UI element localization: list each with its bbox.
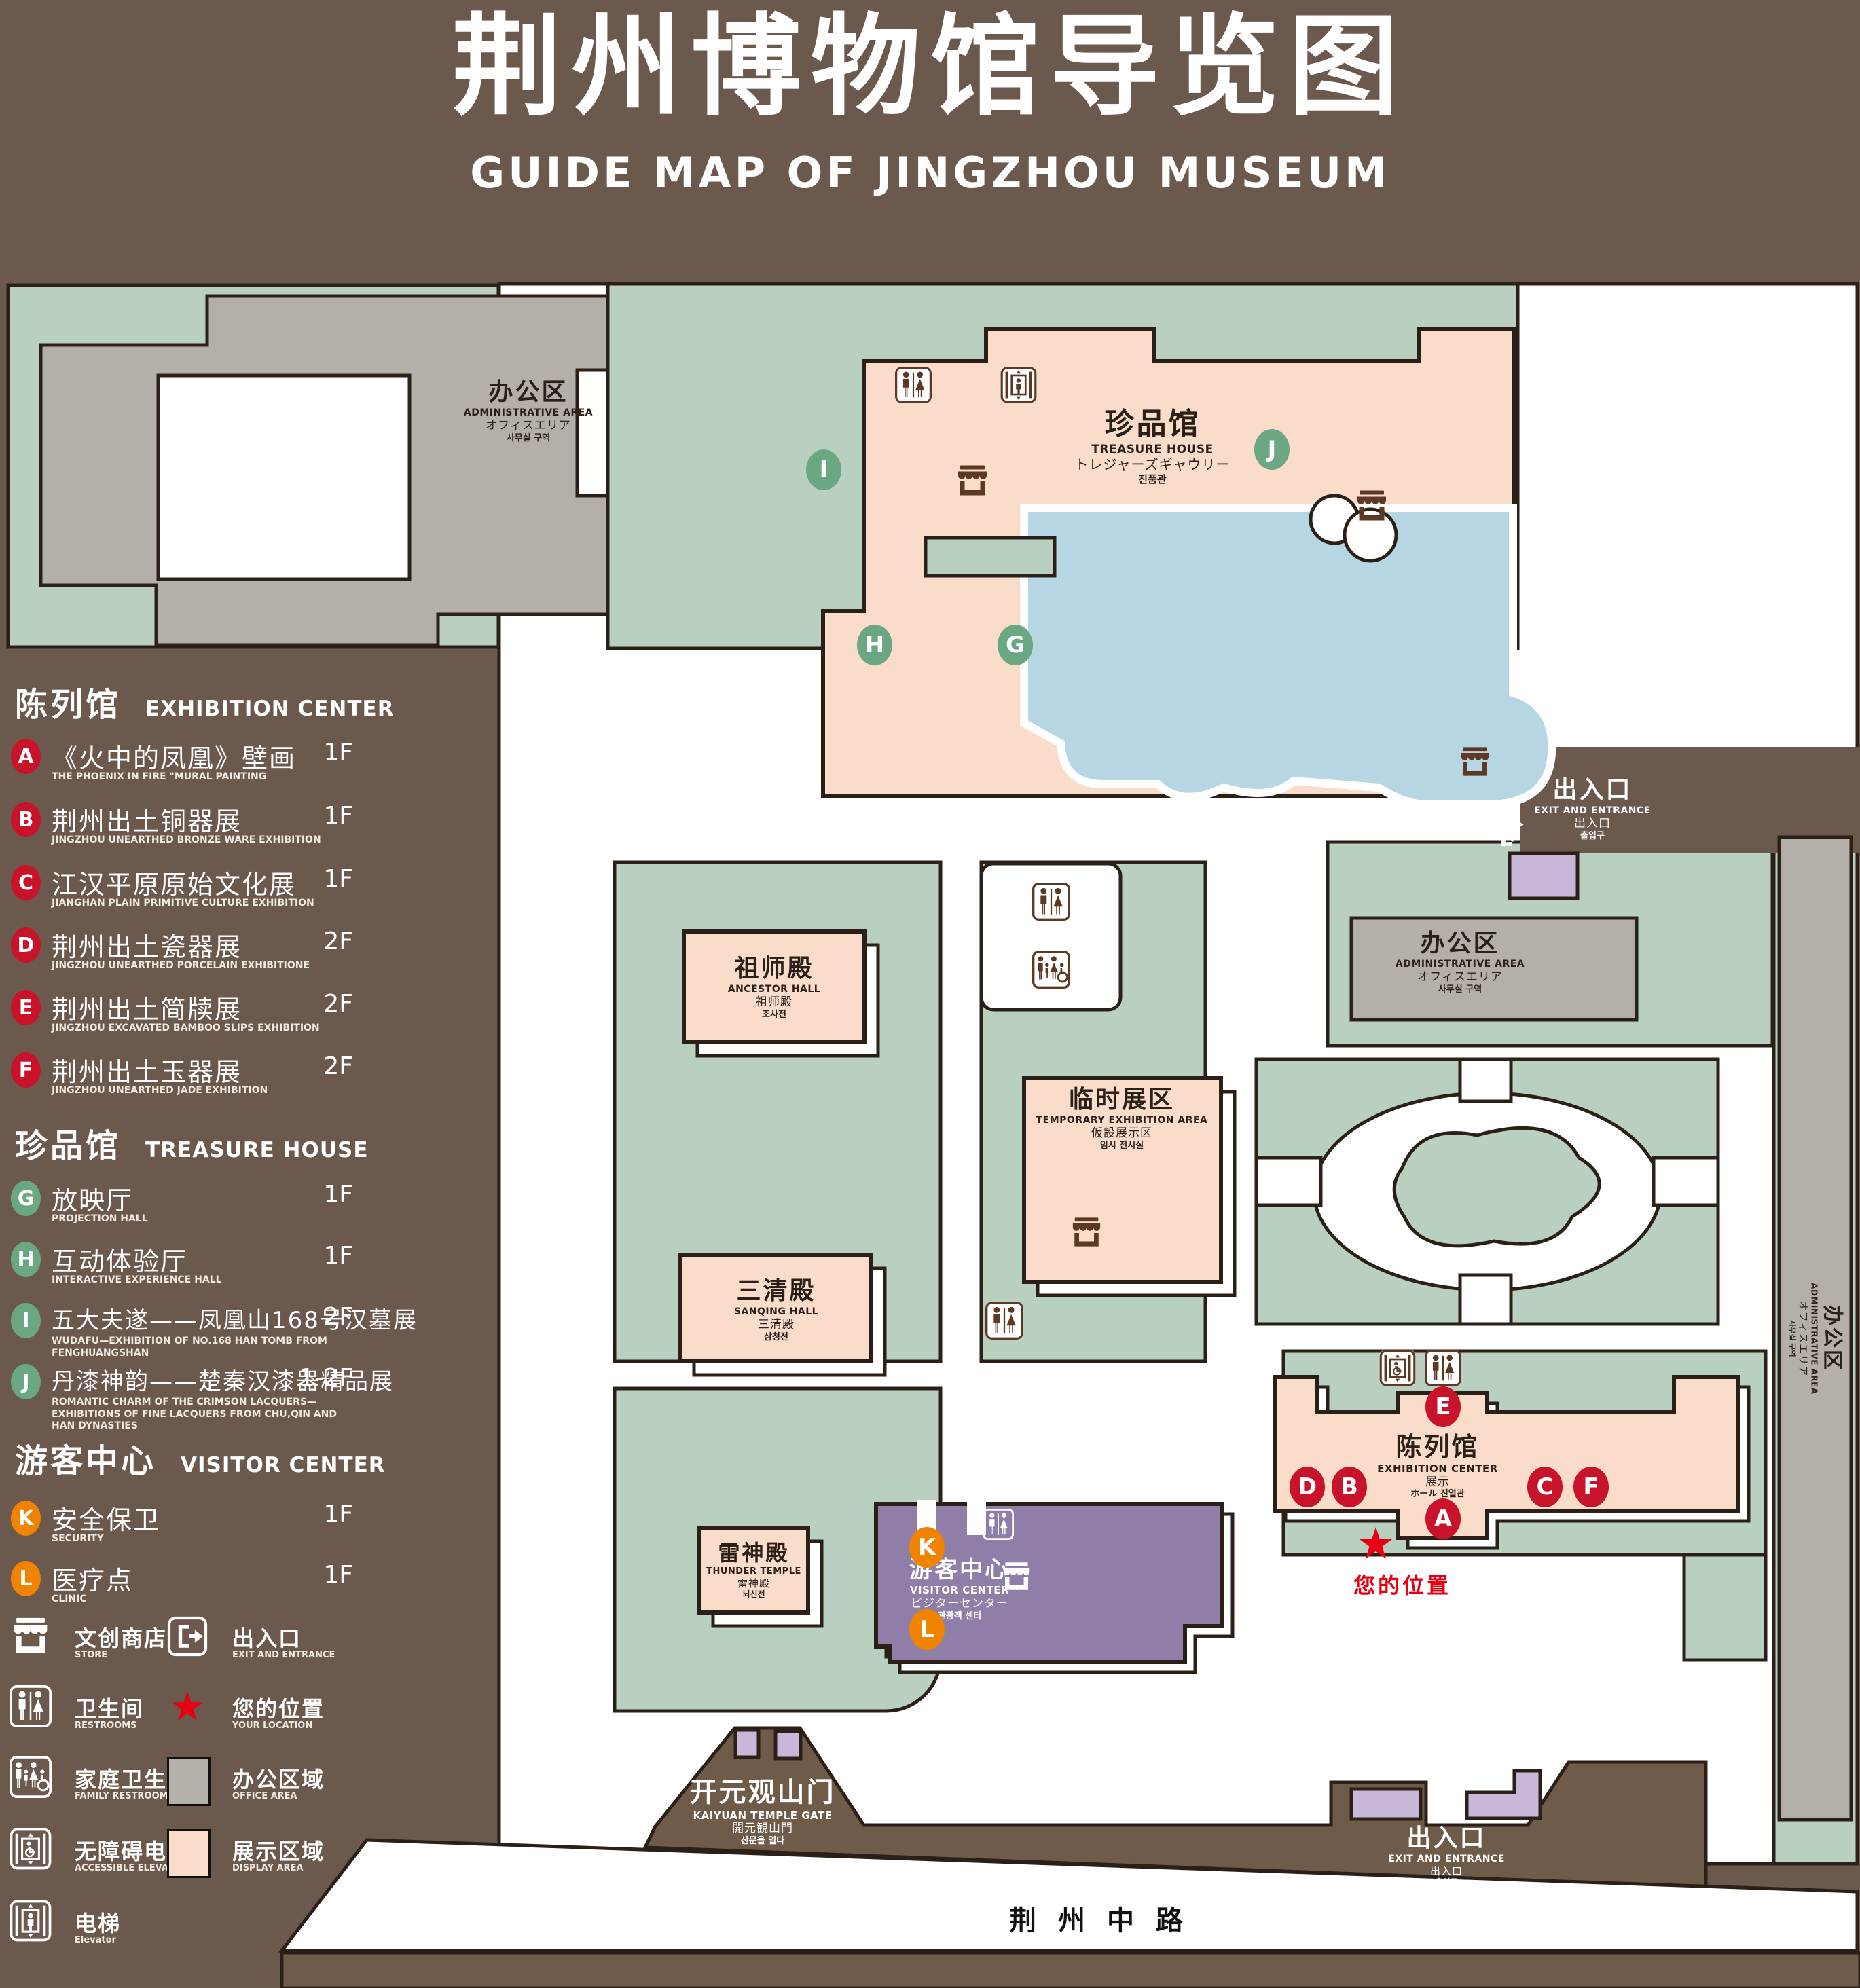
- office-area-swatch: [167, 1757, 211, 1806]
- east-entrance-block: [1510, 853, 1578, 898]
- label-en: ADMINISTRATIVE AREA: [393, 407, 664, 419]
- label-ja: オフィスエリア: [1797, 1202, 1809, 1474]
- exit-icon: [167, 1616, 208, 1657]
- green-patch: [1684, 1555, 1766, 1660]
- item-floor: 1F: [323, 1561, 353, 1589]
- facility-zh: 办公区域: [232, 1763, 325, 1794]
- map-marker-F: F: [1573, 1467, 1609, 1507]
- facility-zh: 展示区域: [232, 1835, 325, 1866]
- family-restrooms-icon: [10, 1756, 52, 1798]
- elevator-icon: [10, 1900, 52, 1942]
- label-zh: 出入口: [1525, 775, 1660, 805]
- label-ko: 진품관: [1017, 473, 1288, 485]
- ancestor-hall-label: 祖师殿 ANCESTOR HALL 祖师殿 조사전: [672, 954, 876, 1020]
- item-en: WUDAFU—EXHIBITION OF NO.168 HAN TOMB FRO…: [52, 1336, 350, 1359]
- label-ja: 出入口: [1345, 1865, 1548, 1877]
- section-title-zh: 珍品馆: [15, 1127, 121, 1165]
- facility-en: OFFICE AREA: [232, 1791, 297, 1801]
- label-zh: 祖师殿: [672, 954, 876, 984]
- garden-path: [1460, 1275, 1511, 1324]
- admin-east-label: 办公区 ADMINISTRATIVE AREA オフィスエリア 사무실 구역: [1324, 929, 1596, 995]
- item-en: JINGZHOU UNEARTHED JADE EXHIBITION: [52, 1085, 350, 1097]
- item-zh: 互动体验厅: [52, 1240, 187, 1278]
- item-en: SECURITY: [52, 1533, 350, 1545]
- courtyard: [158, 375, 409, 579]
- store-icon: [11, 1616, 50, 1655]
- thunder-temple-label: 雷神殿 THUNDER TEMPLE 雷神殿 뇌신전: [652, 1540, 856, 1600]
- label-zh: 办公区: [1324, 929, 1596, 959]
- label-en: EXIT AND ENTRANCE: [1525, 805, 1660, 817]
- item-zh: 荆州出土玉器展: [52, 1051, 242, 1088]
- map-marker-G: G: [998, 625, 1033, 665]
- facility-zh: 电梯: [75, 1907, 121, 1938]
- label-ko: 사무실 구역: [1788, 1202, 1797, 1474]
- your-location-star-icon: [1358, 1526, 1393, 1562]
- label-ko: 사무실 구역: [393, 433, 664, 444]
- map-marker-L: L: [909, 1609, 945, 1650]
- facility-en: EXIT AND ENTRANCE: [232, 1650, 335, 1660]
- garden-path: [1460, 1059, 1511, 1101]
- legend-section-exhibition-center: 陈列馆EXHIBITION CENTER: [15, 678, 395, 725]
- item-floor: 1F: [323, 1242, 353, 1270]
- restrooms-icon: [10, 1685, 52, 1727]
- road-name: 荆州中路: [903, 1898, 1311, 1938]
- marker-badge: E: [11, 990, 41, 1025]
- section-title-en: TREASURE HOUSE: [145, 1138, 369, 1162]
- label-ko: 삼청전: [674, 1332, 878, 1343]
- section-title-zh: 游客中心: [15, 1442, 156, 1480]
- section-title-en: VISITOR CENTER: [181, 1453, 386, 1477]
- label-ko: 관광객 센터: [858, 1611, 1061, 1622]
- gate-pillar: [776, 1731, 801, 1759]
- your-location-icon: [171, 1691, 204, 1723]
- guide-map-poster: 荆州博物馆导览图 GUIDE MAP OF JINGZHOU MUSEUM: [0, 0, 1860, 1988]
- accessible-elevator-icon: [1379, 1350, 1416, 1386]
- display-area-swatch: [167, 1829, 211, 1878]
- marker-badge: I: [11, 1303, 41, 1338]
- item-floor: 1F: [323, 802, 353, 830]
- map-marker-J: J: [1254, 429, 1290, 470]
- store-icon: [1070, 1216, 1103, 1249]
- south-exit-label: 出入口 EXIT AND ENTRANCE 出入口 출입구: [1345, 1824, 1548, 1888]
- label-zh: 临时展区: [1020, 1085, 1224, 1115]
- facility-en: FAMILY RESTROOMS: [75, 1791, 175, 1801]
- item-en: JINGZHOU UNEARTHED BRONZE WARE EXHIBITIO…: [52, 834, 350, 847]
- marker-badge: L: [11, 1561, 41, 1596]
- label-ko: 출입구: [1345, 1877, 1548, 1888]
- item-en: PROJECTION HALL: [52, 1213, 350, 1226]
- label-ja: オフィスエリア: [393, 419, 664, 433]
- section-title-zh: 陈列馆: [15, 686, 121, 724]
- store-icon: [1001, 1561, 1032, 1592]
- item-floor: 2F: [323, 1303, 353, 1331]
- label-en: TEMPORARY EXHIBITION AREA: [1020, 1115, 1224, 1126]
- label-ja: ビジターセンター: [858, 1597, 1061, 1611]
- treasure-house-label: 珍品馆 TREASURE HOUSE トレジャーズギャウリー 진품관: [1017, 406, 1288, 485]
- sanqing-hall-label: 三清殿 SANQING HALL 三清殿 삼청전: [674, 1276, 878, 1343]
- label-ko: 임시 전시실: [1020, 1141, 1224, 1152]
- legend-section-treasure-house: 珍品馆TREASURE HOUSE: [15, 1119, 369, 1166]
- item-zh: 荆州出土简牍展: [52, 989, 242, 1026]
- item-zh: 《火中的凤凰》壁画: [52, 737, 296, 775]
- admin-tower-label: 办公区 ADMINISTRATIVE AREA オフィスエリア 사무실 구역: [1788, 1202, 1844, 1474]
- label-zh: 雷神殿: [652, 1540, 856, 1566]
- item-en: INTERACTIVE EXPERIENCE HALL: [52, 1274, 350, 1287]
- item-floor: 1F: [323, 739, 353, 767]
- kaiyuan-gate-label: 开元观山门 KAIYUAN TEMPLE GATE 開元観山門 산문을 열다: [661, 1776, 864, 1847]
- label-ko: 산문을 열다: [661, 1836, 864, 1847]
- marker-badge: J: [11, 1364, 41, 1399]
- east-exit-label: 出入口 EXIT AND ENTRANCE 出入口 출입구: [1525, 775, 1660, 842]
- label-ko: 사무실 구역: [1324, 984, 1596, 995]
- label-ja: 祖师殿: [672, 995, 876, 1010]
- your-location-text: 您的位置: [1331, 1568, 1474, 1600]
- admin-northwest-label: 办公区 ADMINISTRATIVE AREA オフィスエリア 사무실 구역: [393, 378, 664, 444]
- item-zh: 安全保卫: [52, 1499, 160, 1536]
- label-en: ADMINISTRATIVE AREA: [1809, 1202, 1819, 1474]
- facility-zh: 您的位置: [232, 1692, 325, 1723]
- label-ja: 雷神殿: [652, 1577, 856, 1589]
- item-en: JINGZHOU EXCAVATED BAMBOO SLIPS EXHIBITI…: [52, 1023, 350, 1035]
- facility-en: Elevator: [75, 1935, 116, 1945]
- item-en: JIANGHAN PLAIN PRIMITIVE CULTURE EXHIBIT…: [52, 898, 350, 910]
- label-zh: 陈列馆: [1336, 1431, 1539, 1462]
- label-ja: オフィスエリア: [1324, 970, 1596, 984]
- item-zh: 医疗点: [52, 1560, 133, 1597]
- legend-section-visitor-center: 游客中心VISITOR CENTER: [15, 1434, 386, 1481]
- elevator-icon: [1000, 367, 1037, 403]
- facility-en: RESTROOMS: [75, 1720, 137, 1731]
- item-zh: 荆州出土瓷器展: [52, 926, 242, 963]
- item-zh: 荆州出土铜器展: [52, 800, 242, 838]
- road-south-band: [282, 1953, 1860, 1988]
- label-zh: 出入口: [1345, 1824, 1548, 1854]
- map-marker-B: B: [1332, 1467, 1367, 1507]
- map-marker-K: K: [909, 1527, 945, 1568]
- item-zh: 五大夫遂——凤凰山168号汉墓展: [52, 1302, 418, 1335]
- label-ja: 三清殿: [674, 1318, 878, 1332]
- marker-badge: C: [11, 865, 41, 900]
- store-icon: [1459, 745, 1491, 778]
- item-floor: 2F: [323, 990, 353, 1018]
- label-zh: 开元观山门: [661, 1776, 864, 1809]
- marker-badge: B: [11, 802, 41, 837]
- restrooms-icon: [1032, 883, 1070, 921]
- label-ja: 出入口: [1525, 817, 1660, 831]
- label-en: EXIT AND ENTRANCE: [1345, 1854, 1548, 1865]
- label-en: ADMINISTRATIVE AREA: [1324, 959, 1596, 970]
- family-restrooms-icon: [1032, 951, 1070, 989]
- store-icon: [1355, 489, 1389, 523]
- marker-badge: D: [11, 927, 41, 963]
- item-floor: 1F: [323, 1181, 353, 1209]
- map-marker-I: I: [806, 449, 841, 490]
- label-ja: 仮設展示区: [1020, 1126, 1224, 1141]
- label-en: TREASURE HOUSE: [1017, 443, 1288, 457]
- label-ja: トレジャーズギャウリー: [1017, 456, 1288, 473]
- restrooms-icon: [895, 367, 932, 403]
- exit-entrance-icon: [1491, 812, 1531, 851]
- item-floor: 2F: [323, 927, 353, 955]
- store-icon: [955, 464, 989, 498]
- gate-pillar: [735, 1730, 759, 1757]
- map-marker-A: A: [1425, 1498, 1461, 1539]
- facility-zh: 出入口: [232, 1621, 302, 1653]
- item-floor: 1F: [323, 1501, 353, 1528]
- item-zh: 放映厅: [52, 1179, 133, 1217]
- item-floor: 1-2F: [299, 1364, 353, 1392]
- label-en: THUNDER TEMPLE: [652, 1566, 856, 1577]
- label-ko: 뇌신전: [652, 1589, 856, 1600]
- item-zh: 江汉平原原始文化展: [52, 864, 296, 901]
- garden-path: [1256, 1158, 1321, 1205]
- facility-en: DISPLAY AREA: [232, 1863, 304, 1873]
- label-en: SANQING HALL: [674, 1306, 878, 1318]
- facility-zh: 文创商店: [75, 1621, 167, 1653]
- label-en: EXHIBITION CENTER: [1336, 1462, 1539, 1475]
- facility-en: STORE: [75, 1650, 107, 1660]
- label-zh: 珍品馆: [1017, 406, 1288, 443]
- item-en: THE PHOENIX IN FIRE "MURAL PAINTING: [52, 771, 350, 784]
- south-entrance-block: [1351, 1789, 1421, 1819]
- map-marker-D: D: [1290, 1467, 1325, 1507]
- accessible-elevator-icon: [10, 1828, 52, 1870]
- label-ja: 開元観山門: [661, 1822, 864, 1836]
- facility-zh: 卫生间: [75, 1692, 144, 1723]
- item-en: CLINIC: [52, 1594, 350, 1606]
- map-marker-H: H: [857, 625, 892, 665]
- map-marker-E: E: [1425, 1386, 1461, 1427]
- planter: [926, 538, 1055, 576]
- marker-badge: G: [11, 1181, 41, 1216]
- map-marker-C: C: [1527, 1467, 1563, 1507]
- label-zh: 三清殿: [674, 1276, 878, 1306]
- temporary-exhibition-label: 临时展区 TEMPORARY EXHIBITION AREA 仮設展示区 임시 …: [1020, 1085, 1224, 1152]
- item-en: JINGZHOU UNEARTHED PORCELAIN EXHIBITIONE: [52, 960, 350, 972]
- item-floor: 1F: [323, 865, 353, 893]
- label-zh: 办公区: [1819, 1202, 1844, 1474]
- label-en: KAIYUAN TEMPLE GATE: [661, 1809, 864, 1822]
- marker-badge: F: [11, 1052, 41, 1088]
- item-en: ROMANTIC CHARM OF THE CRIMSON LACQUERS—E…: [52, 1397, 350, 1433]
- marker-badge: K: [11, 1501, 41, 1536]
- label-en: ANCESTOR HALL: [672, 984, 876, 995]
- label-ko: 조사전: [672, 1010, 876, 1020]
- marker-badge: A: [11, 739, 41, 774]
- restrooms-icon: [983, 1509, 1014, 1540]
- restrooms-icon: [985, 1302, 1023, 1340]
- restrooms-icon: [1425, 1350, 1461, 1386]
- garden-path: [1654, 1158, 1718, 1205]
- facility-en: YOUR LOCATION: [232, 1720, 312, 1731]
- label-ko: 출입구: [1525, 831, 1660, 842]
- section-title-en: EXHIBITION CENTER: [145, 697, 395, 721]
- marker-badge: H: [11, 1242, 41, 1277]
- item-floor: 2F: [323, 1052, 353, 1080]
- label-zh: 办公区: [393, 378, 664, 407]
